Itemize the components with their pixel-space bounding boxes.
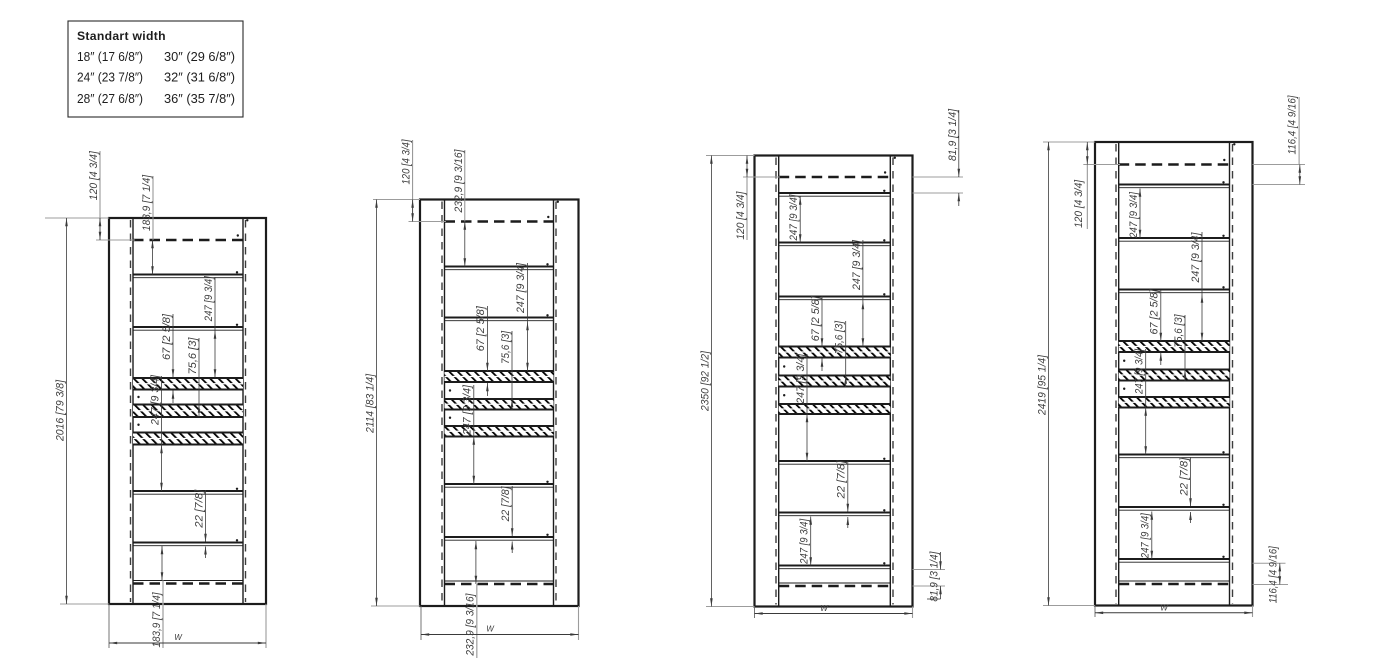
svg-text:75,6 [3]: 75,6 [3] bbox=[834, 320, 846, 354]
svg-text:28″ (27 6/8″): 28″ (27 6/8″) bbox=[77, 91, 143, 106]
svg-text:36″ (35 7/8″): 36″ (35 7/8″) bbox=[164, 91, 235, 106]
svg-text:Standart width: Standart width bbox=[77, 29, 166, 43]
svg-text:247 [9 3/4]: 247 [9 3/4] bbox=[515, 262, 527, 314]
svg-text:116,4 [4 9/16]: 116,4 [4 9/16] bbox=[1267, 545, 1279, 603]
svg-text:247 [9 3/4]: 247 [9 3/4] bbox=[1134, 348, 1146, 395]
svg-text:81,9 [3 1/4]: 81,9 [3 1/4] bbox=[947, 108, 959, 161]
svg-text:32″ (31 6/8″): 32″ (31 6/8″) bbox=[164, 70, 235, 85]
svg-text:18″ (17 6/8″): 18″ (17 6/8″) bbox=[77, 49, 143, 64]
svg-text:183,9 [7 1/4]: 183,9 [7 1/4] bbox=[151, 592, 163, 648]
svg-text:30″ (29 6/8″): 30″ (29 6/8″) bbox=[164, 49, 235, 64]
svg-text:247 [9 3/4]: 247 [9 3/4] bbox=[851, 239, 863, 291]
svg-text:67 [2 5/8]: 67 [2 5/8] bbox=[475, 305, 487, 351]
svg-text:2016 [79 3/8]: 2016 [79 3/8] bbox=[55, 379, 67, 442]
svg-text:75,6 [3]: 75,6 [3] bbox=[1173, 314, 1185, 348]
svg-text:247 [9 3/4]: 247 [9 3/4] bbox=[799, 518, 811, 565]
svg-text:75,6 [3]: 75,6 [3] bbox=[500, 330, 512, 364]
svg-text:22 [7/8]: 22 [7/8] bbox=[500, 485, 512, 522]
svg-text:81,9 [3 1/4]: 81,9 [3 1/4] bbox=[928, 551, 940, 602]
svg-text:116,4 [4 9/16]: 116,4 [4 9/16] bbox=[1286, 95, 1298, 155]
svg-text:2350 [92 1/2]: 2350 [92 1/2] bbox=[699, 350, 711, 412]
svg-text:247 [9 3/4]: 247 [9 3/4] bbox=[788, 194, 800, 242]
svg-text:247 [9 3/4]: 247 [9 3/4] bbox=[1190, 231, 1202, 283]
svg-text:247 [9 3/4]: 247 [9 3/4] bbox=[1128, 191, 1140, 239]
svg-text:67 [2 5/8]: 67 [2 5/8] bbox=[810, 295, 822, 341]
svg-text:67 [2 5/8]: 67 [2 5/8] bbox=[1149, 288, 1161, 334]
svg-text:183,9 [7 1/4]: 183,9 [7 1/4] bbox=[141, 174, 153, 231]
svg-text:120 [4 3/4]: 120 [4 3/4] bbox=[88, 150, 100, 200]
svg-text:247 [9 3/4]: 247 [9 3/4] bbox=[203, 275, 215, 322]
svg-text:22 [7/8]: 22 [7/8] bbox=[193, 489, 205, 529]
svg-text:247 [9 3/4]: 247 [9 3/4] bbox=[149, 374, 161, 426]
svg-text:232,9 [9 3/16]: 232,9 [9 3/16] bbox=[465, 593, 477, 657]
svg-text:75,6 [3]: 75,6 [3] bbox=[187, 336, 199, 374]
svg-text:24″ (23 7/8″): 24″ (23 7/8″) bbox=[77, 70, 143, 85]
svg-text:120 [4 3/4]: 120 [4 3/4] bbox=[735, 191, 747, 240]
svg-text:22 [7/8]: 22 [7/8] bbox=[1178, 456, 1190, 496]
svg-text:22 [7/8]: 22 [7/8] bbox=[836, 459, 848, 499]
svg-text:120 [4 3/4]: 120 [4 3/4] bbox=[401, 139, 413, 185]
svg-text:67 [2 5/8]: 67 [2 5/8] bbox=[161, 313, 173, 360]
svg-text:2419 [95 1/4]: 2419 [95 1/4] bbox=[1037, 354, 1049, 416]
svg-text:232,9 [9 3/16]: 232,9 [9 3/16] bbox=[453, 148, 465, 213]
svg-text:247 [9 3/4]: 247 [9 3/4] bbox=[1140, 512, 1152, 559]
svg-text:120 [4 3/4]: 120 [4 3/4] bbox=[1073, 179, 1085, 228]
svg-text:2114 [83 1/4]: 2114 [83 1/4] bbox=[365, 373, 377, 434]
svg-text:247 [9 3/4]: 247 [9 3/4] bbox=[462, 384, 474, 436]
svg-text:247 [9 3/4]: 247 [9 3/4] bbox=[795, 353, 807, 405]
